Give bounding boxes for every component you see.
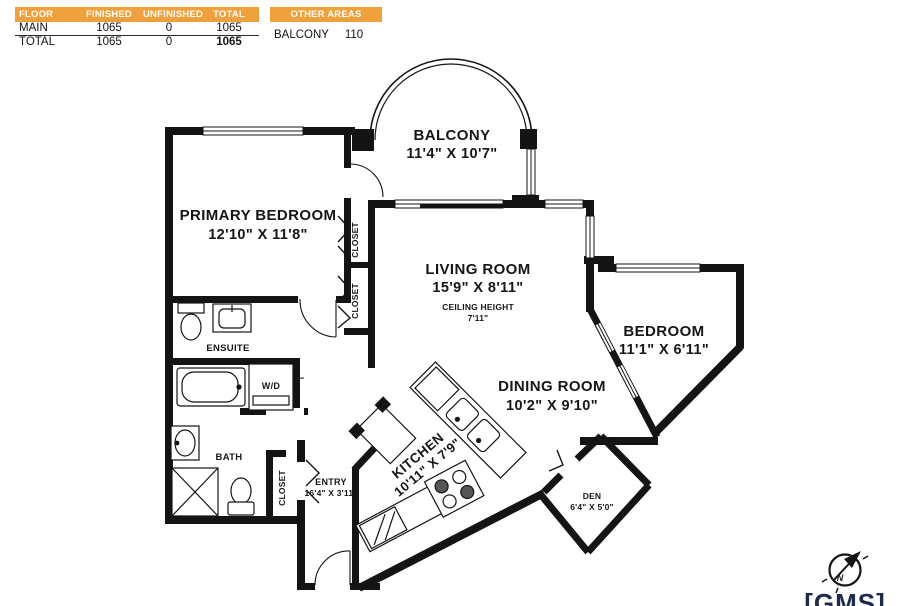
- ceiling-height-label: CEILING HEIGHT: [442, 302, 514, 312]
- laundry-label: W/D: [262, 381, 281, 391]
- bath-toilet: [228, 478, 254, 515]
- bedroom-label: BEDROOM: [623, 323, 704, 340]
- window-living-balcony: [395, 200, 583, 208]
- room-labels: BALCONY 11'4" X 10'7" PRIMARY BEDROOM 12…: [180, 127, 710, 512]
- den-dims: 6'4" X 5'0": [570, 502, 614, 512]
- bath-label: BATH: [216, 452, 243, 463]
- door-gaps: [266, 296, 350, 590]
- living-room-dims: 15'9" X 8'11": [432, 280, 523, 296]
- bath-sink: [171, 426, 199, 460]
- ensuite-toilet: [178, 303, 204, 340]
- floorplan-page: { "colors": {"header_orange": "#F1A13C",…: [0, 0, 910, 606]
- ensuite-label: ENSUITE: [206, 343, 249, 354]
- dining-room-label: DINING ROOM: [498, 378, 606, 395]
- entry-label: ENTRY: [315, 477, 347, 487]
- closet-label-2: CLOSET: [350, 283, 360, 319]
- dining-room-dims: 10'2" X 9'10": [506, 398, 598, 414]
- ensuite-sink: [213, 304, 251, 332]
- bathtub: [177, 368, 245, 406]
- floor-plan: BALCONY 11'4" X 10'7" PRIMARY BEDROOM 12…: [0, 0, 910, 606]
- compass-icon: N: [822, 551, 868, 593]
- walls: [165, 127, 744, 590]
- entry-dims: 16'4" X 3'11": [305, 488, 358, 498]
- closet-label-1: CLOSET: [350, 222, 360, 258]
- window-bedroom: [616, 264, 700, 272]
- den-label: DEN: [583, 491, 602, 501]
- primary-bedroom-dims: 12'10" X 11'8": [208, 227, 308, 243]
- living-room-label: LIVING ROOM: [425, 261, 530, 278]
- ceiling-height-value: 7'11": [468, 313, 489, 323]
- window-living-right: [586, 216, 594, 258]
- balcony-label: BALCONY: [414, 127, 491, 144]
- balcony-dims: 11'4" X 10'7": [406, 146, 497, 162]
- primary-bedroom-label: PRIMARY BEDROOM: [180, 207, 337, 224]
- bedroom-dims: 11'1" X 6'11": [619, 342, 709, 358]
- window-balcony-right: [527, 149, 535, 195]
- gms-logo: [GMS]: [804, 588, 886, 606]
- closet-label-3: CLOSET: [277, 470, 287, 506]
- compass-north-label: N: [837, 573, 844, 583]
- shower: [172, 468, 218, 516]
- window-primary-bedroom: [203, 127, 303, 135]
